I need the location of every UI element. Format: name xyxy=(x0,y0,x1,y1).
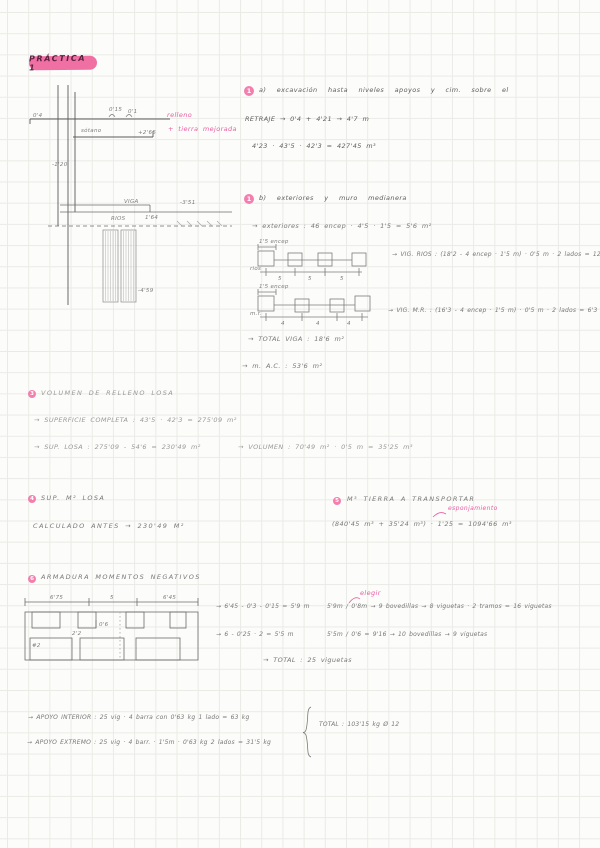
s5-title: M³ TIERRA A TRANSPORTAR xyxy=(347,496,475,503)
section-4-number: 4 xyxy=(28,495,36,503)
notebook-page: PRÁCTICA 1 xyxy=(0,0,600,848)
encep-a-dim: 5 xyxy=(308,276,312,282)
pile-hatch xyxy=(106,231,134,301)
plan-dim: 2'2 xyxy=(72,631,82,637)
encep-b-label: 1'5 encep xyxy=(259,284,289,290)
section-3-number: 3 xyxy=(28,390,36,398)
plan-dim: #2 xyxy=(32,643,41,649)
s7-line1: → APOYO INTERIOR : 25 vig · 4 barra con … xyxy=(28,715,249,721)
sotano-label: sótano xyxy=(81,127,102,134)
section-5-number: 5 xyxy=(333,497,341,505)
encep-b-dim: 4 xyxy=(316,321,320,326)
s1b-vig-rios: → VIG. RIOS : (18'2 - 4 encep · 1'5 m) ·… xyxy=(392,252,600,258)
wall-lines xyxy=(30,85,170,305)
tierra-mejorada-note: + tierra mejorada xyxy=(168,126,237,133)
s6-res1: 5'9m / 0'8m → 9 bovedillas → 8 viguetas … xyxy=(327,604,552,610)
plan-outline xyxy=(25,612,198,660)
encep-b-note: m.r. xyxy=(250,311,262,317)
s6-res2: 5'5m / 0'6 = 9'16 → 10 bovedillas → 9 vi… xyxy=(327,632,487,638)
dim-label: -1'20 xyxy=(52,162,68,168)
s3-title: VOLUMEN DE RELLENO LOSA xyxy=(41,390,174,397)
encep-b-dim: 4 xyxy=(281,321,285,326)
s1b-title: b) exteriores y muro medianera xyxy=(259,195,407,202)
s6-title: ARMADURA MOMENTOS NEGATIVOS xyxy=(41,574,201,581)
s3-line2: → SUP. LOSA : 275'09 - 54'6 = 230'49 m² xyxy=(34,444,201,451)
drawing-labels: 0'4 0'15 0'1 sótano +2'65 -1'20 VIGA RIO… xyxy=(33,107,196,294)
encep-a-label: 1'5 encep xyxy=(259,239,289,245)
s3-line1: → SUPERFICIE COMPLETA : 43'5 · 42'3 = 27… xyxy=(34,417,237,424)
encep-a-note: rios xyxy=(250,266,261,272)
rios-label: RIOS xyxy=(111,216,126,222)
dim-label: 1'64 xyxy=(145,215,158,221)
encep-a-dim: 5 xyxy=(340,276,344,282)
s1b-mac: → m. A.C. : 53'6 m² xyxy=(242,363,322,370)
plan-dim: 6'45 xyxy=(163,595,176,601)
section-1b-number: 1 xyxy=(244,194,254,204)
s6-calc2: → 6 - 0'25 · 2 = 5'5 m xyxy=(216,632,294,638)
encep-a-dim: 5 xyxy=(278,276,282,282)
page-title-highlight: PRÁCTICA 1 xyxy=(29,56,97,71)
relleno-note: relleno xyxy=(167,112,192,119)
s6-total: → TOTAL : 25 viguetas xyxy=(263,657,352,664)
elegir-note: elegir xyxy=(360,590,381,597)
page-title: PRÁCTICA 1 xyxy=(29,54,97,73)
encep-row-a xyxy=(258,244,366,276)
foundation-section-drawing: 0'4 0'15 0'1 sótano +2'65 -1'20 VIGA RIO… xyxy=(25,78,240,333)
esponjamiento-note: esponjamiento xyxy=(448,506,498,512)
esponjamiento-arrow xyxy=(432,509,448,519)
dim-label: 0'1 xyxy=(128,109,137,115)
viga-label: VIGA xyxy=(124,199,139,205)
s1b-line1: → exteriores : 46 encep · 4'5 · 1'5 = 5'… xyxy=(252,223,432,230)
s3-line3: → VOLUMEN : 70'49 m² · 0'5 m = 35'25 m³ xyxy=(238,444,413,451)
dim-label: -3'51 xyxy=(180,200,196,206)
ground-hatch xyxy=(177,221,222,226)
section-1a-number: 1 xyxy=(244,86,254,96)
plan-dim: 0'6 xyxy=(99,622,109,628)
section-6-number: 6 xyxy=(28,575,36,583)
beam-lines xyxy=(48,205,232,226)
s7-line2: → APOYO EXTREMO : 25 vig · 4 barr. · 1'5… xyxy=(27,740,271,746)
s1b-vig-mr: → VIG. M.R. : (16'3 - 4 encep · 1'5 m) ·… xyxy=(388,308,600,314)
s1b-total: → TOTAL VIGA : 18'6 m² xyxy=(248,336,344,343)
total-brace xyxy=(301,706,315,758)
s1a-title: a) excavación hasta niveles apoyos y cim… xyxy=(259,87,509,94)
encep-b-dim: 4 xyxy=(347,321,351,326)
plan-dim: 5 xyxy=(110,595,114,601)
s6-calc1: → 6'45 - 0'3 - 0'15 = 5'9 m xyxy=(216,604,310,610)
slab-plan-diagram: 6'75 5 6'45 0'6 2'2 #2 xyxy=(20,590,210,675)
s4-title: SUP. M² LOSA xyxy=(41,495,105,502)
s5-line1: (840'45 m³ + 35'24 m³) · 1'25 = 1094'66 … xyxy=(332,521,512,528)
s1a-line1: RETRAJE → 0'4 + 4'21 → 4'7 m xyxy=(245,116,369,123)
s4-line1: CALCULADO ANTES → 230'49 m² xyxy=(33,523,185,530)
s7-total: TOTAL : 103'15 kg Ø 12 xyxy=(319,722,399,728)
dim-label: 0'4 xyxy=(33,113,43,119)
dim-label: +2'65 xyxy=(138,130,156,136)
encep-row-b xyxy=(258,289,370,321)
plan-dim: 6'75 xyxy=(50,595,63,601)
s1a-line2: 4'23 · 43'5 · 42'3 = 427'45 m³ xyxy=(252,143,376,150)
dim-label: -4'59 xyxy=(138,288,154,294)
dim-label: 0'15 xyxy=(109,107,122,113)
